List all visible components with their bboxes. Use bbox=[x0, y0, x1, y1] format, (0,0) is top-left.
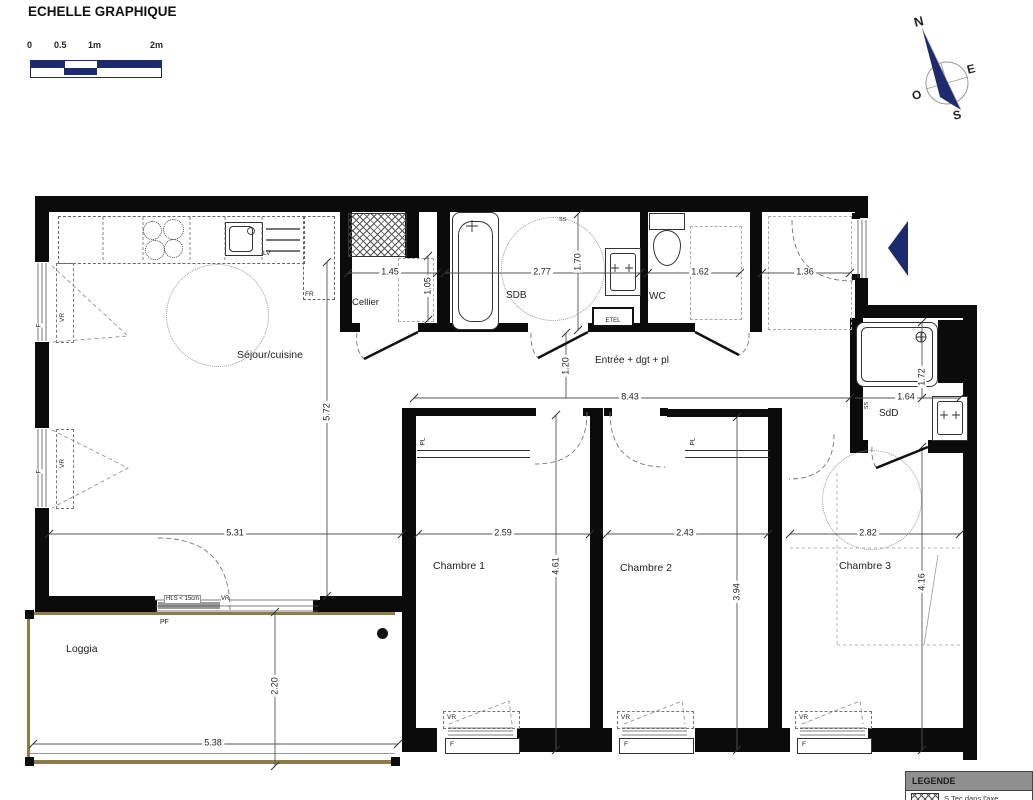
scale-bar-graphic bbox=[30, 60, 162, 78]
window-sill bbox=[445, 738, 520, 754]
loggia-edge bbox=[27, 760, 399, 764]
cooktop-burner bbox=[145, 240, 165, 260]
wall bbox=[868, 728, 977, 752]
legend-swatch bbox=[911, 793, 939, 800]
cooktop-burner bbox=[164, 239, 183, 258]
dim-label: 1.45 bbox=[379, 268, 401, 277]
wall bbox=[320, 596, 412, 612]
dim-label: 5.72 bbox=[323, 401, 332, 423]
door-jamb bbox=[604, 408, 612, 416]
dishwasher-lines bbox=[266, 228, 300, 252]
wall bbox=[35, 196, 49, 262]
window-label: F bbox=[35, 470, 42, 474]
legend-row: S.Tec dans l'axe bbox=[906, 791, 1032, 800]
wall bbox=[35, 596, 155, 612]
loggia-corner bbox=[25, 757, 34, 766]
wall bbox=[340, 323, 360, 332]
sdb-turning-circle bbox=[501, 217, 605, 321]
window-label: F bbox=[802, 741, 806, 748]
dim-label: 1.62 bbox=[689, 268, 711, 277]
scale-tick-2m: 2m bbox=[150, 40, 163, 50]
closet-label: PL bbox=[689, 438, 696, 446]
wall bbox=[963, 305, 977, 760]
wall bbox=[517, 728, 612, 752]
scale-title: ECHELLE GRAPHIQUE bbox=[28, 4, 177, 19]
dim-label: 1.20 bbox=[562, 355, 571, 377]
wall bbox=[402, 728, 437, 752]
shutter-label: VR bbox=[621, 714, 630, 721]
wall bbox=[35, 196, 868, 212]
wall bbox=[590, 408, 603, 752]
entrance-arrow bbox=[888, 221, 908, 276]
dim-label: 2.77 bbox=[531, 268, 553, 277]
wall bbox=[405, 212, 419, 258]
window-shutter-box bbox=[56, 263, 74, 343]
wall bbox=[35, 508, 49, 610]
legend-header: LEGENDE bbox=[906, 772, 1032, 791]
wall bbox=[415, 408, 530, 416]
sill-height-label: Ht.S < 15cm bbox=[164, 595, 201, 604]
floor-plan: ECHELLE GRAPHIQUE 0 0.5 1m 2m N E O S bbox=[0, 0, 1033, 800]
door-jamb bbox=[852, 274, 860, 280]
wall bbox=[695, 728, 790, 752]
legend: LEGENDE S.Tec dans l'axe bbox=[905, 771, 1033, 800]
compass-north-label: N bbox=[912, 13, 925, 30]
balcony-dot bbox=[377, 628, 388, 639]
dim-label: 2.43 bbox=[674, 529, 696, 538]
wall bbox=[750, 212, 762, 332]
loggia-edge bbox=[27, 612, 30, 762]
closet-shelf bbox=[417, 450, 530, 458]
cooktop-burner bbox=[163, 219, 184, 240]
scale-seg bbox=[97, 61, 161, 68]
wall bbox=[855, 305, 977, 318]
compass-west-label: O bbox=[910, 87, 922, 103]
scale-seg bbox=[31, 68, 64, 75]
loggia-edge bbox=[30, 612, 395, 615]
dim-label: 3.94 bbox=[733, 581, 742, 603]
room-label-loggia: Loggia bbox=[66, 643, 98, 655]
ch3-leader-line bbox=[924, 555, 938, 645]
water-heater-etel: ETEL bbox=[592, 307, 634, 327]
dim-label: 1.05 bbox=[424, 275, 433, 297]
sdb-vanity-basin bbox=[610, 253, 636, 291]
dim-label: 2.20 bbox=[271, 675, 280, 697]
window-label: F bbox=[624, 741, 628, 748]
fridge-box bbox=[303, 216, 335, 300]
wall bbox=[641, 323, 695, 332]
closet-label: PL bbox=[419, 438, 426, 446]
shutter-label: VR bbox=[447, 714, 456, 721]
kitchen-sink-bowl bbox=[229, 226, 253, 252]
shutter-label: VR bbox=[221, 596, 229, 603]
dim-label: 1.70 bbox=[574, 251, 583, 273]
wall bbox=[437, 212, 450, 332]
scale-tick-0: 0 bbox=[27, 40, 32, 50]
compass-south-label: S bbox=[951, 107, 962, 123]
dim-label: 2.82 bbox=[857, 529, 879, 538]
etel-label: ETEL bbox=[605, 318, 620, 324]
wall bbox=[667, 409, 768, 417]
dim-label: 1.64 bbox=[895, 393, 917, 402]
dim-label: 4.61 bbox=[552, 555, 561, 577]
plan-linework bbox=[0, 0, 1033, 800]
room-label-chambre2: Chambre 2 bbox=[620, 562, 672, 574]
scale-seg bbox=[31, 61, 64, 68]
compass-east-label: E bbox=[965, 61, 976, 77]
window-label: F bbox=[35, 324, 42, 328]
room-label-chambre3: Chambre 3 bbox=[839, 560, 891, 572]
room-label-chambre1: Chambre 1 bbox=[433, 560, 485, 572]
door-jamb bbox=[852, 213, 860, 219]
ss-label: SS bbox=[559, 217, 566, 224]
fridge-label: FR bbox=[305, 291, 314, 298]
compass-rose bbox=[922, 28, 968, 110]
closet-shelf bbox=[685, 450, 770, 458]
compass-needle bbox=[922, 28, 961, 110]
scale-seg bbox=[64, 68, 97, 75]
sdd-basin-inner bbox=[937, 401, 963, 435]
dishwasher-label: LV bbox=[263, 250, 270, 257]
dim-label: 4.16 bbox=[918, 571, 927, 593]
legend-title: LEGENDE bbox=[912, 776, 956, 786]
window-label: F bbox=[450, 741, 454, 748]
wall bbox=[35, 342, 49, 428]
dim-label: 8.43 bbox=[619, 393, 641, 402]
door-jamb bbox=[660, 408, 668, 416]
room-label-wc: WC bbox=[649, 291, 666, 302]
window-sill bbox=[797, 738, 872, 754]
door-jamb bbox=[528, 408, 536, 416]
legend-row-label: S.Tec dans l'axe bbox=[944, 794, 998, 800]
shutter-label: VR bbox=[59, 313, 66, 322]
dim-label: 5.38 bbox=[202, 739, 224, 748]
loggia-corner bbox=[25, 610, 34, 619]
scale-seg bbox=[97, 68, 161, 75]
dim-label: 5.31 bbox=[224, 529, 246, 538]
wall bbox=[768, 408, 782, 752]
pf-label: PF bbox=[160, 619, 169, 626]
bathtub-inner bbox=[458, 221, 493, 322]
dim-label: 2.59 bbox=[492, 529, 514, 538]
toilet-tank bbox=[649, 213, 685, 230]
wall bbox=[938, 320, 963, 383]
shutter-label: VR bbox=[59, 459, 66, 468]
shutter-label: VR bbox=[799, 714, 808, 721]
room-label-sdd: SdD bbox=[879, 408, 898, 419]
dim-label: 1.72 bbox=[918, 366, 927, 388]
wall bbox=[640, 212, 648, 332]
toilet-bowl bbox=[653, 230, 681, 266]
dim-label: 1.36 bbox=[794, 268, 816, 277]
dimension-lines-horizontal bbox=[33, 273, 960, 744]
room-label-entree: Entrée + dgt + pl bbox=[595, 355, 669, 366]
cooktop-burner bbox=[143, 221, 162, 240]
room-label-sejour: Séjour/cuisine bbox=[237, 349, 303, 361]
window-sill bbox=[619, 738, 694, 754]
ss-label: SS bbox=[864, 402, 871, 409]
room-label-sdb: SDB bbox=[506, 290, 527, 301]
door-jamb bbox=[583, 408, 590, 416]
loggia-inner-line bbox=[30, 753, 395, 754]
scale-seg bbox=[64, 61, 99, 68]
room-label-cellier: Cellier bbox=[352, 297, 379, 308]
technical-duct bbox=[348, 213, 407, 257]
window-shutter-box bbox=[56, 429, 74, 509]
scale-tick-1m: 1m bbox=[88, 40, 101, 50]
loggia-corner bbox=[391, 757, 400, 766]
wall bbox=[418, 323, 437, 332]
wall bbox=[928, 440, 963, 453]
scale-tick-05: 0.5 bbox=[54, 40, 67, 50]
door-leaves bbox=[364, 332, 928, 468]
wall bbox=[402, 408, 416, 752]
